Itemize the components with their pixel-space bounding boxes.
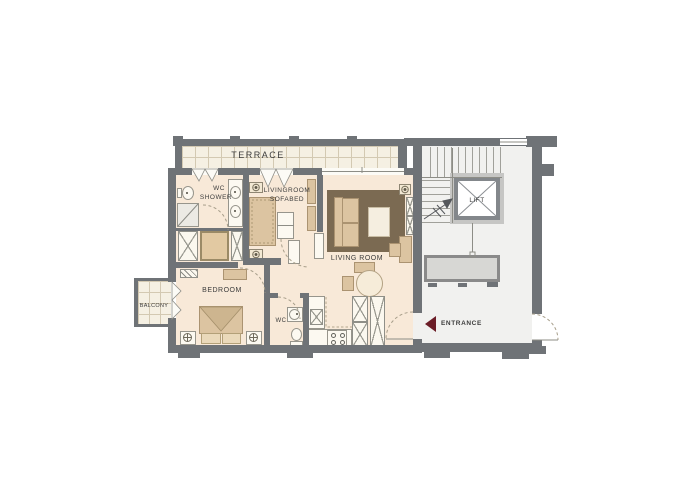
pillow — [201, 333, 221, 344]
dining-table — [356, 270, 383, 297]
wall-pillar — [289, 136, 299, 146]
stair-landing-unit — [424, 255, 500, 282]
wall-pillar — [178, 352, 200, 358]
wall — [532, 146, 542, 314]
floor-plan: TERRACE WC SHOWER LIVINGROOM SOFABED LIV… — [0, 0, 700, 500]
wall-pillar — [287, 352, 313, 358]
room-label-balcony: BALCONY — [140, 304, 168, 310]
room-label-living-room: LIVING ROOM — [331, 255, 383, 262]
shower-tray — [177, 203, 199, 227]
terrace-door-opening — [260, 168, 293, 175]
sink-drain — [296, 313, 298, 315]
speaker-icon — [399, 184, 411, 195]
landing-foot — [458, 283, 467, 287]
wc-sink-basin — [289, 309, 300, 320]
vent-unit — [180, 269, 198, 278]
cabinet — [307, 206, 316, 231]
balcony-parapet — [134, 278, 171, 281]
wall — [413, 339, 422, 353]
wall — [303, 293, 309, 352]
window — [192, 168, 218, 175]
toilet-detail — [186, 192, 188, 194]
wall-pillar — [347, 136, 357, 146]
wall — [264, 262, 270, 352]
hall-cabinet — [288, 240, 300, 264]
wall-pillar — [230, 136, 240, 146]
room-label-wc-shower-line1: WC — [213, 186, 225, 193]
label-entrance: ENTRANCE — [441, 321, 482, 328]
label-lift: LIFT — [469, 198, 484, 205]
room-label-terrace: TERRACE — [231, 151, 285, 160]
wall — [243, 168, 249, 265]
burner-icon — [331, 333, 336, 338]
room-label-sofabed-line1: LIVINGROOM — [264, 188, 311, 195]
landing-foot — [428, 283, 437, 287]
wall — [176, 228, 243, 231]
room-label-sofabed-line2: SOFABED — [270, 197, 304, 204]
dining-chair — [342, 276, 354, 291]
window — [500, 139, 527, 145]
wall — [264, 293, 278, 298]
desk-chair — [389, 243, 401, 257]
landing-foot — [487, 282, 498, 287]
kitchen-sink — [310, 309, 323, 325]
room-label-wc-shower-line2: SHOWER — [200, 195, 232, 202]
entrance-arrow-icon — [425, 316, 436, 332]
balcony-parapet — [134, 324, 171, 327]
wall — [218, 168, 260, 175]
terrace-floor — [182, 146, 404, 170]
basin-drain — [234, 191, 236, 193]
tall-cabinet — [352, 296, 368, 322]
wall — [404, 168, 413, 175]
wall — [175, 168, 192, 175]
lamp-icon — [183, 333, 192, 342]
closet-cabinet — [200, 231, 229, 261]
apartment-door-opening — [413, 313, 422, 339]
wall — [413, 146, 422, 313]
wall-pillar — [424, 351, 450, 358]
wall — [168, 262, 238, 268]
hall-cabinet — [314, 233, 324, 259]
speaker-icon — [249, 182, 263, 193]
side-table — [277, 212, 294, 239]
tall-cabinet — [352, 322, 368, 347]
sofa-cushion — [342, 198, 359, 223]
dresser — [223, 269, 247, 280]
sofa-cushion — [342, 223, 359, 247]
coffee-table — [368, 207, 390, 237]
wall-pillar — [542, 164, 554, 176]
building-door-opening — [532, 314, 542, 340]
lamp-icon — [249, 333, 258, 342]
toilet-icon — [182, 186, 194, 200]
room-label-bedroom: BEDROOM — [202, 287, 242, 294]
wall — [317, 168, 323, 232]
burner-icon — [340, 333, 345, 338]
stairs-side-flight — [422, 178, 452, 223]
wall-pillar — [524, 346, 546, 354]
wardrobe-icon — [178, 231, 198, 261]
window-wall — [322, 168, 404, 175]
basin-drain — [234, 210, 236, 212]
sofabed — [249, 197, 276, 246]
wall — [243, 258, 281, 265]
tall-wardrobe — [370, 296, 385, 347]
bed-mattress — [199, 306, 243, 334]
wardrobe-icon — [231, 231, 243, 261]
room-label-wc: WC — [276, 318, 287, 324]
pillow — [222, 333, 241, 344]
toilet-icon — [291, 328, 302, 341]
balcony-parapet — [134, 278, 138, 327]
